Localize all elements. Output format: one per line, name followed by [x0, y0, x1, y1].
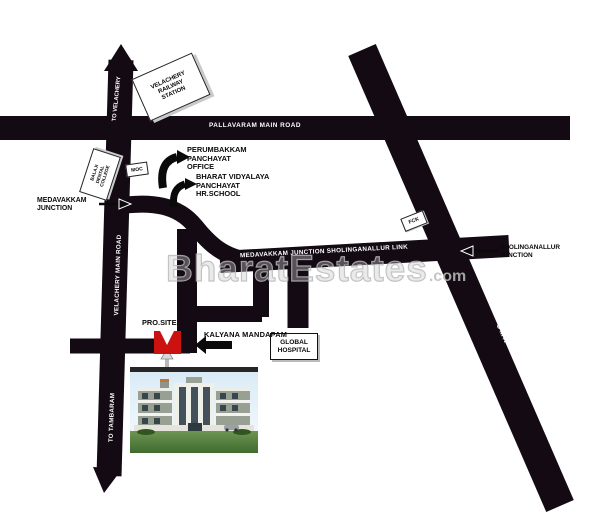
photo-car-wheel: [234, 428, 237, 431]
photo-window: [142, 418, 148, 424]
kalyana-mandapam-label: KALYANA MANDAPAM: [204, 330, 287, 339]
site-photo-illustration: [130, 367, 258, 453]
medavakkam-junction-line2: JUNCTION: [37, 205, 87, 213]
photo-gate: [188, 423, 202, 431]
global-hospital-line2: HOSPITAL: [278, 347, 311, 355]
photo-left-parapet: [138, 388, 172, 391]
location-map: BharatEstates .com PALLAVARAM MAIN ROAD …: [0, 0, 604, 520]
photo-glazing: [203, 387, 210, 431]
panchayat-office-arrow-icon: [162, 157, 177, 188]
photo-window: [232, 405, 238, 411]
photo-car-wheel: [225, 428, 228, 431]
photo-window: [220, 405, 226, 411]
medavakkam-junction-line1: MEDAVAKKAM: [37, 197, 87, 205]
sholinganallur-junction-label: SHOLINGANALLUR JUNCTION: [500, 244, 560, 259]
photo-window: [154, 393, 160, 399]
site-photo: [130, 367, 258, 453]
sholinganallur-junction-line2: JUNCTION: [500, 252, 560, 260]
pro-site-label: PRO.SITE: [142, 318, 177, 327]
photo-glazing: [179, 387, 186, 431]
photo-left-band1: [138, 400, 172, 403]
panchayat-office-line3: OFFICE: [187, 163, 247, 172]
to-tambaram-arrow-icon: [93, 467, 122, 493]
photo-window: [142, 405, 148, 411]
to-velachery-arrow-icon: [104, 44, 138, 71]
site-marker: [154, 331, 181, 354]
kalyana-arrow-shaft: [206, 341, 232, 349]
photo-window: [154, 405, 160, 411]
sholinganallur-junction-line1: SHOLINGANALLUR: [500, 244, 560, 252]
photo-window: [220, 393, 226, 399]
global-hospital-line1: GLOBAL: [280, 339, 308, 347]
road-label-pallavaram: PALLAVARAM MAIN ROAD: [195, 122, 315, 129]
panchayat-office-label: PERUMBAKKAM PANCHAYAT OFFICE: [187, 146, 247, 172]
medavakkam-junction-label: MEDAVAKKAM JUNCTION: [37, 197, 87, 213]
photo-window: [232, 393, 238, 399]
photo-window: [154, 418, 160, 424]
school-label: BHARAT VIDYALAYA PANCHAYAT HR.SCHOOL: [196, 173, 269, 199]
photo-centre-tower: [186, 377, 202, 383]
photo-tower-cap: [160, 379, 169, 382]
photo-right-band2: [216, 413, 250, 416]
photo-left-band2: [138, 413, 172, 416]
photo-right-parapet: [216, 388, 250, 391]
school-line3: HR.SCHOOL: [196, 190, 269, 199]
photo-bush: [137, 429, 155, 435]
photo-right-band1: [216, 400, 250, 403]
photo-top-edge: [130, 367, 258, 372]
watermark-suffix: .com: [429, 268, 466, 286]
photo-window: [142, 393, 148, 399]
